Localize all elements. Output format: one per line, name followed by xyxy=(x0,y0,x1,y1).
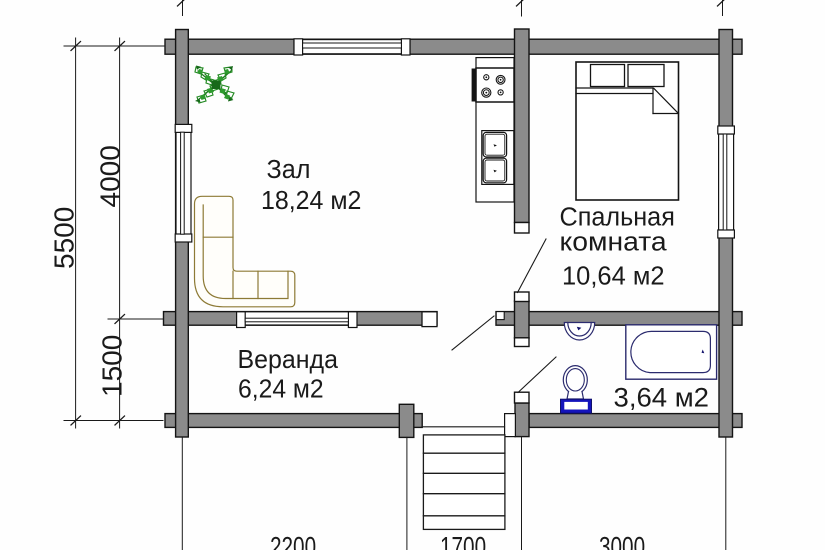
svg-text:6,24 м2: 6,24 м2 xyxy=(238,375,324,404)
svg-text:1700: 1700 xyxy=(440,532,486,550)
svg-text:2200: 2200 xyxy=(270,532,316,550)
svg-text:1500: 1500 xyxy=(97,335,128,397)
svg-text:18,24 м2: 18,24 м2 xyxy=(261,187,361,216)
svg-text:Зал: Зал xyxy=(267,156,311,184)
svg-text:4000: 4000 xyxy=(95,145,126,207)
svg-text:3000: 3000 xyxy=(599,532,645,550)
svg-text:5500: 5500 xyxy=(49,207,80,269)
svg-text:10,64 м2: 10,64 м2 xyxy=(562,262,665,290)
svg-text:3,64 м2: 3,64 м2 xyxy=(614,383,710,412)
svg-text:Веранда: Веранда xyxy=(238,345,339,374)
svg-text:комната: комната xyxy=(560,227,668,257)
